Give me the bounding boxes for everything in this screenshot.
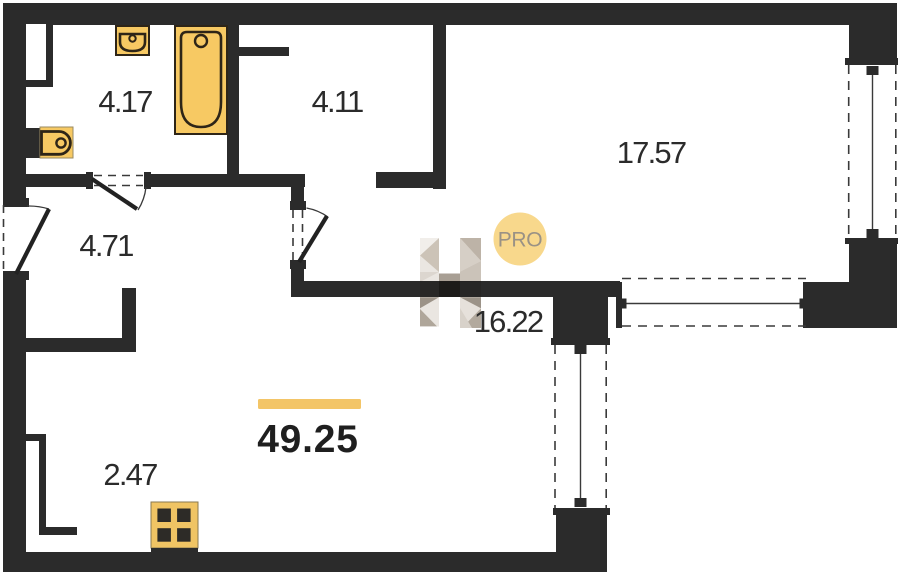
- svg-text:4.71: 4.71: [79, 228, 133, 263]
- svg-text:2.47: 2.47: [103, 457, 157, 492]
- svg-text:17.57: 17.57: [617, 135, 686, 170]
- svg-text:4.11: 4.11: [312, 84, 363, 119]
- svg-text:49.25: 49.25: [257, 418, 359, 461]
- svg-text:PRO: PRO: [498, 229, 543, 252]
- svg-text:4.17: 4.17: [98, 84, 152, 119]
- svg-text:16.22: 16.22: [474, 304, 543, 339]
